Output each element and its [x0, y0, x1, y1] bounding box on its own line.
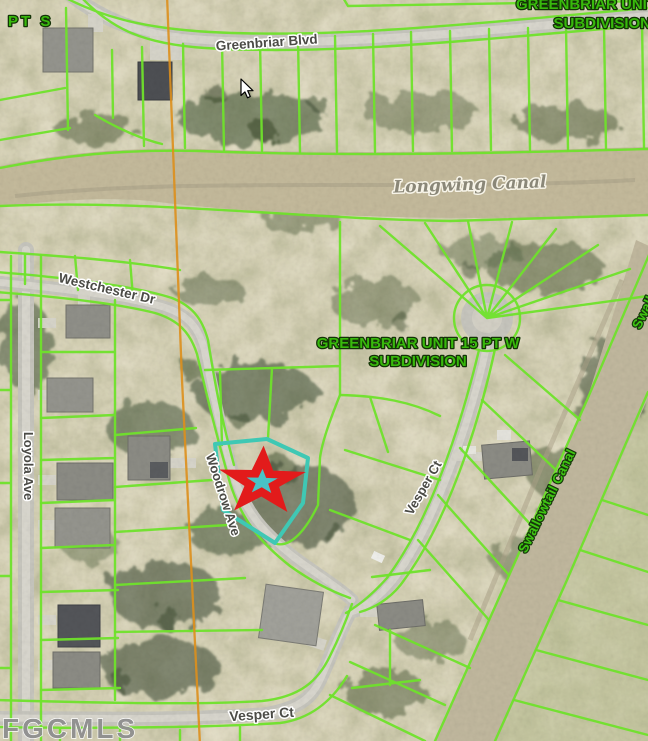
- subdivision-label-center-line2: SUBDIVISION: [369, 353, 467, 370]
- subdivision-label-top-right-line2: SUBDIVISION: [553, 15, 648, 32]
- fgcmls-watermark: FGCMLS: [2, 713, 138, 741]
- subdivision-label-top-left: PT S: [8, 13, 53, 30]
- grain-overlay: [0, 0, 648, 741]
- subdivision-label-top-right-line1: GREENBRIAR UNIT: [516, 0, 648, 13]
- street-label-loyola-ave: Loyola Ave: [21, 432, 36, 500]
- subdivision-label-center-line1: GREENBRIAR UNIT 15 PT W: [317, 335, 520, 352]
- map-viewport[interactable]: PT S GREENBRIAR UNIT SUBDIVISION Greenbr…: [0, 0, 648, 741]
